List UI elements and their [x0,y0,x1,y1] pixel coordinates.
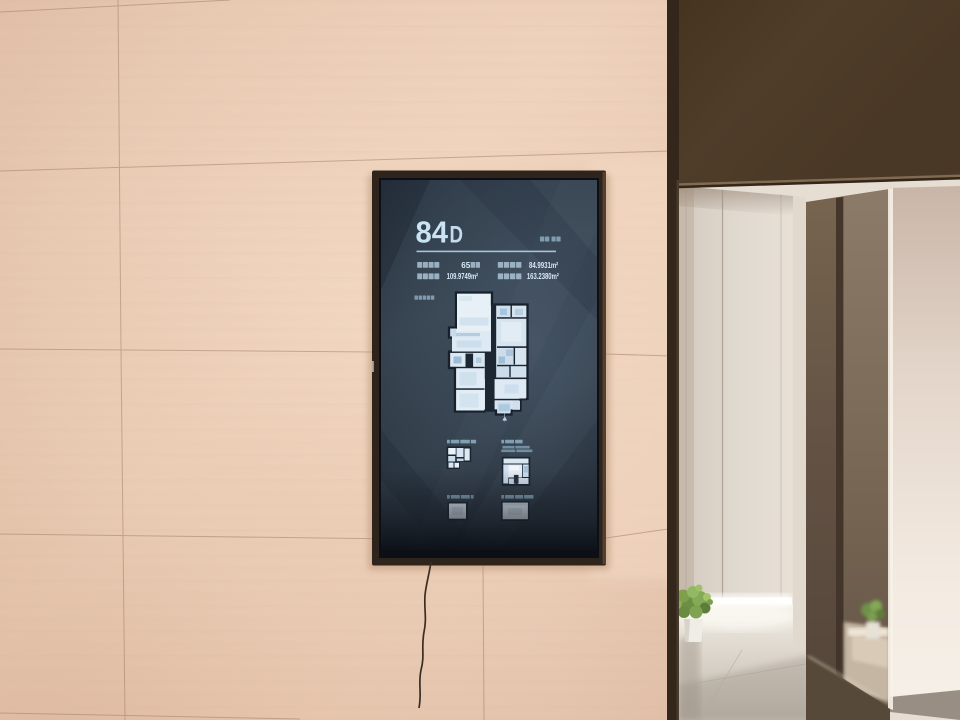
svg-text:D: D [450,222,464,249]
svg-text:84.9931m²: 84.9931m² [529,261,558,270]
svg-text:65: 65 [461,260,470,270]
svg-text:163.2380m²: 163.2380m² [527,272,559,281]
svg-text:109.9749m²: 109.9749m² [447,272,479,281]
svg-text:84: 84 [416,215,449,250]
